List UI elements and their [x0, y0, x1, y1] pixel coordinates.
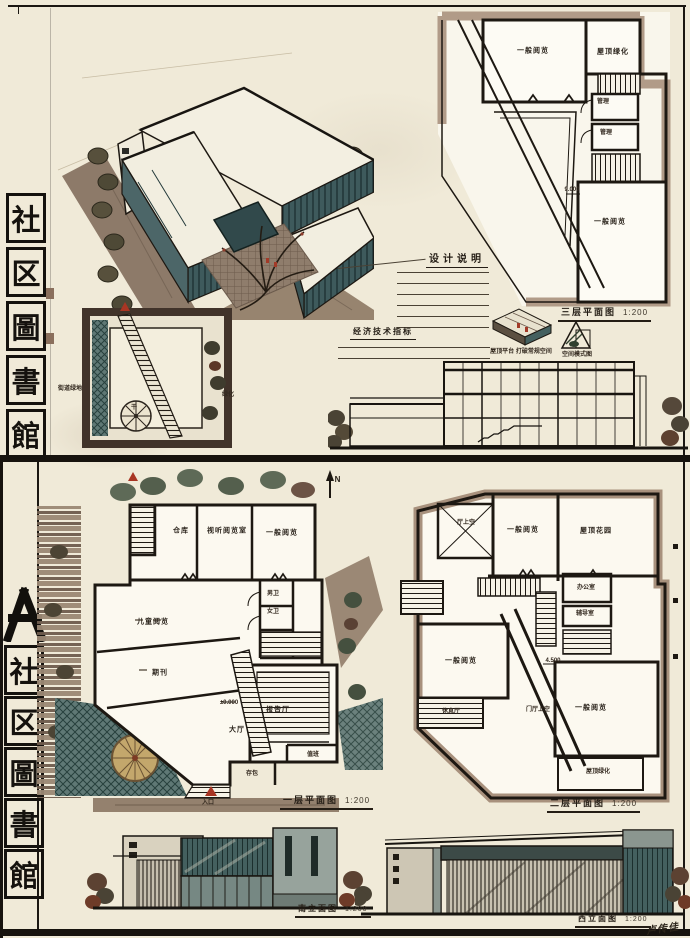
sheet-tick [18, 5, 19, 14]
room-label: 休息厅 [442, 709, 460, 715]
room-label: 仓库 [173, 528, 189, 535]
room-label: 一般阅览 [594, 219, 626, 226]
notes-line [397, 272, 489, 273]
site-label: 干 [131, 405, 137, 411]
room-label: 一般阅览 [266, 530, 298, 537]
title-char-box: 社 [6, 193, 46, 243]
crease-line [50, 8, 51, 458]
site-label: 绿化 [222, 392, 234, 398]
room-label: 一般阅览 [507, 527, 539, 534]
title-char-box: 館 [4, 849, 44, 899]
room-label: 屋顶绿化 [586, 769, 610, 775]
room-label: 办公室 [577, 585, 595, 591]
room-label: 屋顶绿化 [597, 49, 629, 56]
sheet-border-bottom [0, 929, 690, 936]
entry-marker [120, 302, 130, 311]
building-masses [113, 828, 337, 908]
room-label: 一般阅览 [517, 48, 549, 55]
west-elevation-caption: 西立面图 1:200 [575, 913, 651, 928]
sheet-edge-strip [0, 455, 3, 938]
room-label: 儿童阅览 [137, 619, 169, 626]
presentation-sheet: 社 区 圖 書 館 [0, 0, 690, 938]
building-masses [385, 830, 673, 914]
notes-line [397, 283, 489, 284]
title-char: 館 [11, 413, 40, 455]
site-plan-drawing [52, 288, 267, 466]
title-char-box: 館 [6, 409, 46, 459]
second-floor-plan-caption: 二层平面图 1:200 [547, 796, 640, 813]
title-char-box: 区 [6, 247, 46, 297]
room-label: 视听阅览室 [207, 528, 247, 535]
room-label: 值班 [307, 752, 319, 758]
design-notes-title: 设计说明 [426, 250, 488, 268]
title-char-box: 圖 [6, 301, 46, 351]
title-char-box: 書 [6, 355, 46, 405]
room-label: 男卫 [267, 591, 279, 597]
title-char: 圖 [11, 305, 40, 347]
sketch-caption: 屋顶平台 打破常规空间 [490, 349, 552, 355]
first-floor-plan-caption: 一层平面图 1:200 [280, 793, 373, 810]
site-label: 街道绿地 [58, 386, 82, 392]
title-char: 書 [11, 359, 40, 401]
notes-line [338, 347, 490, 348]
room-label: 管理 [597, 99, 609, 105]
column-dots [673, 544, 678, 659]
title-char: 区 [11, 251, 40, 293]
elevation-lines [330, 362, 688, 448]
title-char: 館 [9, 853, 38, 895]
title-char: 社 [11, 197, 40, 239]
middle-elevation-drawing [328, 356, 690, 456]
room-label: 屋顶花园 [580, 528, 612, 535]
room-label: 管理 [600, 130, 612, 136]
econ-indicators-title: 经济技术指标 [350, 326, 416, 340]
room-label: 辅导室 [576, 611, 594, 617]
notes-line [397, 305, 489, 306]
room-label: 门厅上空 [526, 707, 550, 713]
room-label: 报告厅 [266, 707, 290, 714]
room-label: 存包 [246, 771, 258, 777]
room-label: 大厅 [229, 727, 245, 734]
level-mark: ±0.000 [220, 700, 238, 706]
north-arrow-label: N [335, 476, 342, 484]
site-green-strip [92, 320, 108, 436]
entry-label: 入口 [202, 800, 214, 806]
third-floor-plan-drawing [428, 4, 690, 334]
first-floor-plan-drawing [35, 460, 385, 822]
room-label: 一般阅览 [575, 705, 607, 712]
level-mark: 4.500 [545, 658, 560, 664]
notes-line [397, 294, 489, 295]
level-mark: 9.000 [564, 187, 579, 193]
room-label: 一般阅览 [445, 658, 477, 665]
room-label: 期刊 [152, 670, 168, 677]
room-label: 女卫 [267, 609, 279, 615]
roof-terrace-sketch [485, 303, 557, 349]
notes-line [397, 316, 489, 317]
second-floor-plan-drawing [393, 466, 690, 818]
room-label: 厅上空 [457, 520, 475, 526]
axonometric-view [52, 48, 374, 320]
massing-sketch [558, 318, 594, 352]
